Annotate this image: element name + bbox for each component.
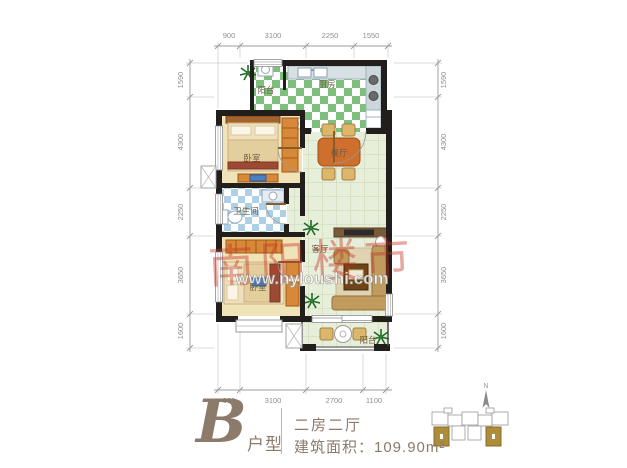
dresser-icon: [238, 174, 278, 182]
dim-right-2: 4300: [439, 134, 448, 151]
watermark: 南阳楼市 www.nyloushi.com: [207, 231, 417, 294]
room-label-balcony-top: 阳台: [257, 85, 274, 95]
unit-type-label: 户型: [247, 430, 283, 455]
dim-right-1: 1590: [439, 72, 448, 89]
dim-right-4: 3650: [439, 267, 448, 284]
dim-top-3: 2250: [322, 31, 339, 40]
room-label-kitchen: 厨房: [318, 79, 335, 89]
dim-top-1: 900: [223, 31, 236, 40]
window: [386, 294, 393, 316]
stove-icon: [366, 66, 381, 110]
fridge-icon: [366, 110, 381, 128]
dim-right-5: 1600: [439, 323, 448, 340]
ac-platform-icon: [201, 166, 216, 188]
window: [254, 60, 282, 67]
ac-platform-icon: [286, 324, 302, 348]
room-label-bathroom: 卫生间: [233, 206, 259, 216]
window: [216, 194, 223, 224]
bay-window: [236, 316, 282, 332]
dim-left-1: 1590: [176, 72, 185, 89]
dim-right-3: 2250: [439, 204, 448, 221]
bath-sink-icon: [262, 190, 284, 202]
room-label-balcony-bottom: 阳台: [359, 335, 376, 345]
dim-left-3: 2250: [176, 204, 185, 221]
room-label-living: 客厅: [311, 244, 329, 254]
room-label-bedroom-lower: 卧室: [249, 282, 267, 292]
caption: B 户型 二房二厅 建筑面积：109.90m²: [0, 396, 627, 466]
north-label: N: [483, 383, 488, 390]
dim-top-4: 1550: [363, 31, 380, 40]
dim-left-4: 3650: [176, 267, 185, 284]
layout-type: 二房二厅: [294, 414, 362, 435]
window: [216, 126, 223, 170]
dim-left-2: 4300: [176, 134, 185, 151]
sliding-door: [312, 316, 372, 323]
unit-letter: B: [196, 392, 247, 452]
room-label-dining: 餐厅: [330, 148, 348, 158]
floorplan-page: 900 3100 2250 1550 900 3100 2700 1100 15…: [0, 0, 627, 468]
dim-top-2: 3100: [265, 31, 282, 40]
room-label-bedroom-upper: 卧室: [243, 153, 261, 163]
dim-left-5: 1600: [176, 323, 185, 340]
caption-divider: [281, 408, 282, 454]
kitchen-counter-icon: [288, 66, 368, 79]
area-text: 建筑面积：109.90m²: [294, 436, 445, 457]
